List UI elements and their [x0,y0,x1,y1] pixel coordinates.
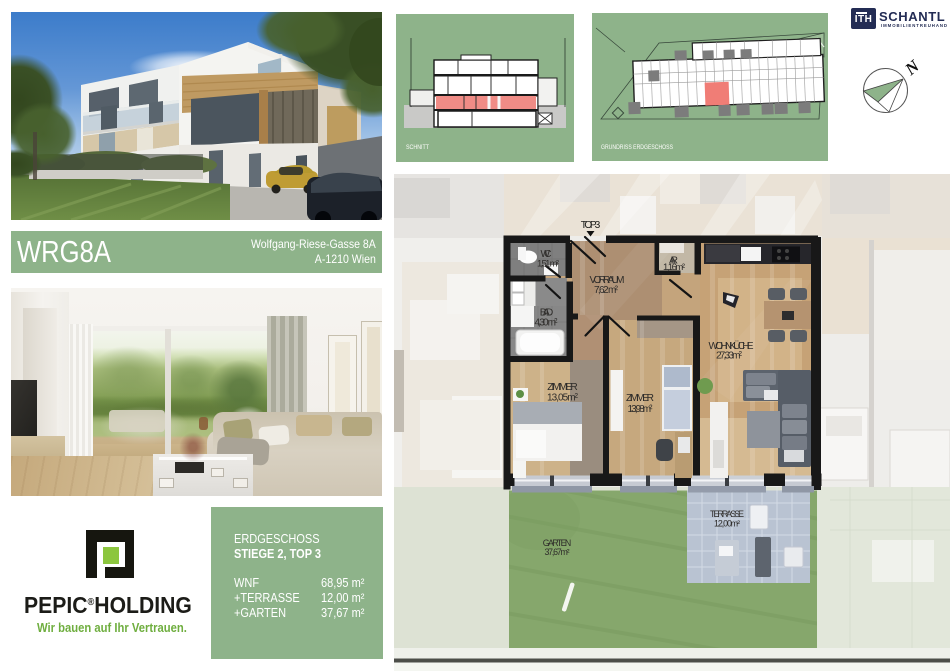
svg-text:4,30 m²: 4,30 m² [535,318,559,329]
svg-text:ZIMMER: ZIMMER [626,393,654,404]
svg-text:37,67m²: 37,67m² [545,547,570,557]
svg-text:27,33m²: 27,33m² [716,351,743,362]
svg-text:13,05m²: 13,05m² [547,393,579,404]
svg-text:1,51 m²: 1,51 m² [537,259,559,270]
svg-text:12,00m²: 12,00m² [714,519,740,529]
svg-text:N: N [901,56,924,80]
svg-text:1,16m²: 1,16m² [663,262,685,273]
svg-text:13,98m²: 13,98m² [628,404,654,415]
svg-text:TERRASSE: TERRASSE [710,509,744,519]
svg-text:ZIMMER: ZIMMER [547,382,578,393]
svg-text:SCHNITT: SCHNITT [406,145,429,151]
svg-text:TOP 3: TOP 3 [581,220,601,231]
svg-text:7,62 m²: 7,62 m² [594,285,619,296]
svg-text:GRUNDRISS ERDGESCHOSS: GRUNDRISS ERDGESCHOSS [601,145,673,151]
